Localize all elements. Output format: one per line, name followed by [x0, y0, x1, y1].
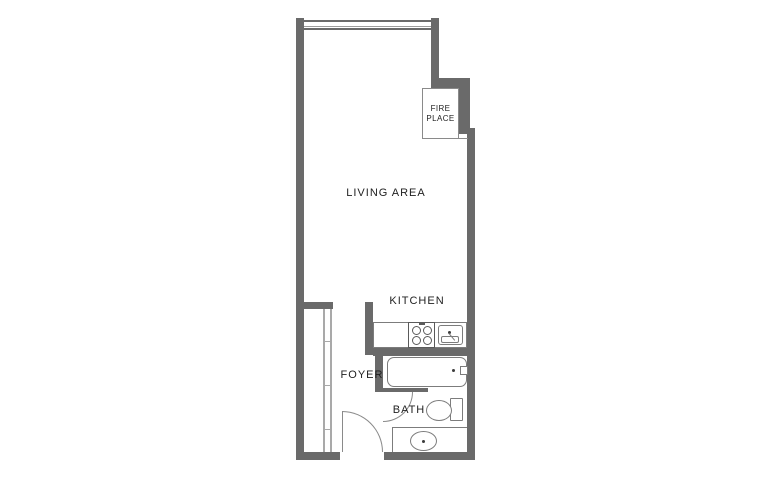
closet-door-line: [323, 309, 325, 452]
wall-right-upper: [431, 18, 439, 82]
closet-panel-tick: [323, 429, 332, 430]
stove-burner-icon: [423, 326, 432, 335]
bathtub-drain-dot: [452, 369, 455, 372]
kitchen-bath-divider-wall: [373, 348, 467, 356]
window-top: [304, 20, 431, 30]
window-glass-line: [304, 26, 431, 27]
closet-panel-tick: [323, 385, 332, 386]
closet-panel-tick: [323, 341, 332, 342]
stove-burner-icon: [412, 326, 421, 335]
stove-control-mark: [419, 322, 425, 325]
wall-bottom-left: [296, 452, 340, 460]
living-area-label: LIVING AREA: [346, 187, 425, 199]
stove-icon: [408, 322, 435, 348]
entry-door-arc: [342, 411, 383, 452]
wall-right-lower: [467, 128, 475, 460]
kitchen-sink-basin: [441, 336, 459, 343]
fireplace-label-line1: FIRE: [431, 104, 451, 114]
closet-door-line: [330, 309, 332, 452]
stove-burner-icon: [423, 336, 432, 345]
bath-sink-drain-dot: [422, 440, 425, 443]
bathtub-icon: [387, 357, 467, 387]
toilet-bowl-icon: [426, 400, 452, 421]
bath-counter-edge-top: [392, 427, 467, 428]
bath-label: BATH: [393, 404, 426, 416]
kitchen-wall-post: [365, 302, 373, 355]
wall-left: [296, 18, 304, 460]
fireplace-label-line2: PLACE: [426, 114, 454, 124]
kitchen-sink-icon: [438, 325, 463, 345]
bath-counter-edge-left: [392, 427, 393, 452]
fireplace-hearth-line: [458, 138, 468, 139]
fireplace: FIRE PLACE: [422, 88, 459, 139]
wall-stub-living-foyer: [296, 302, 333, 309]
floor-plan: FIRE PLACE LIVING AREA KITCHEN FOYER BAT…: [0, 0, 768, 480]
stove-burner-icon: [412, 336, 421, 345]
kitchen-label: KITCHEN: [389, 295, 444, 307]
bathtub-faucet: [460, 366, 468, 375]
entry-door-leaf: [342, 411, 343, 452]
foyer-label: FOYER: [341, 369, 384, 381]
wall-bottom-right: [384, 452, 475, 460]
